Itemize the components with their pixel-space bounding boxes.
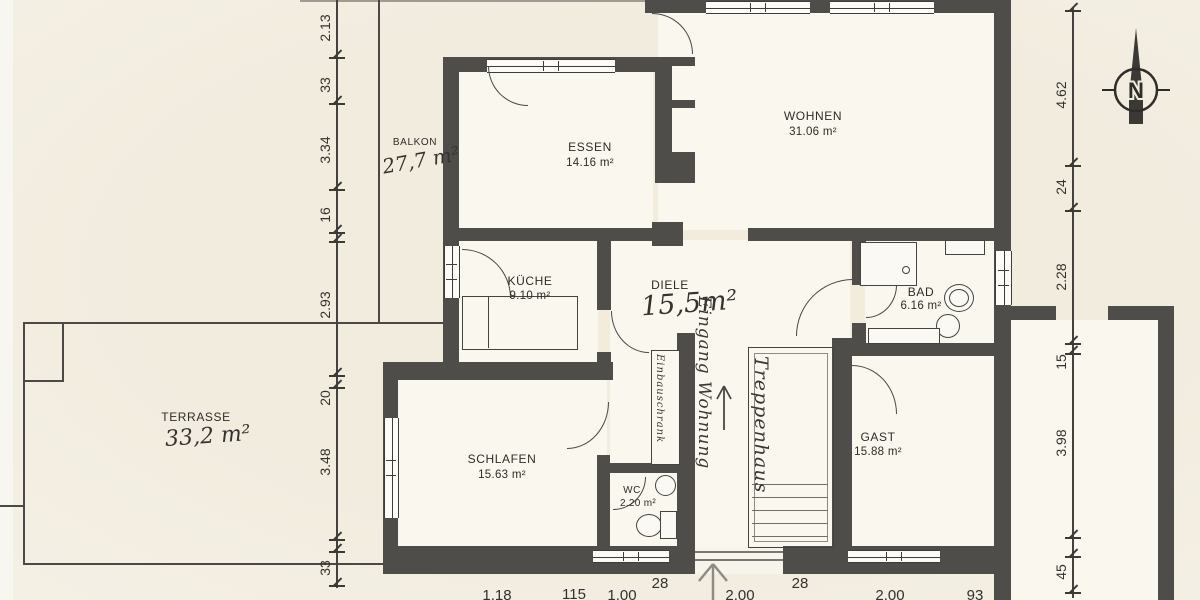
room-area-terrasse: 33,2 m²	[164, 421, 251, 452]
entry-direction-arrow	[712, 378, 736, 434]
room-area-wohnen: 31.06 m²	[789, 126, 837, 138]
kitchen-counter-divider	[488, 296, 489, 348]
closet-annotation: Einbauschrank	[654, 354, 665, 462]
window	[384, 418, 399, 518]
wall	[443, 228, 683, 241]
room-label-terrasse: TERRASSE	[161, 410, 230, 424]
wc-sink	[655, 475, 676, 496]
dim-left-7: 33	[317, 560, 333, 576]
bathtub	[868, 328, 940, 344]
terrace-notch	[23, 380, 64, 382]
dim-right-4: 3.98	[1053, 429, 1069, 456]
compass-north-icon: N	[1098, 26, 1182, 126]
wall	[852, 343, 1010, 356]
window	[706, 1, 810, 14]
wall	[652, 222, 683, 246]
wall-niche	[672, 66, 695, 100]
floor-plan: Einbauschrank BALKON 27,7 m² ESSEN 14.16…	[0, 0, 1200, 600]
wall	[597, 238, 611, 310]
scan-margin	[0, 0, 13, 600]
dim-bottom-5: 28	[792, 575, 809, 592]
entry-annotation: Eingang Wohnung	[694, 296, 714, 446]
window	[593, 550, 669, 563]
shower-drain	[902, 266, 910, 274]
threshold-line	[695, 551, 783, 553]
terrace-notch	[62, 322, 64, 382]
room-essen	[458, 70, 653, 230]
room-area-kueche: 9.10 m²	[509, 290, 550, 302]
dim-left-1: 33	[317, 77, 333, 93]
room-label-gast: GAST	[860, 430, 895, 444]
toilet-bowl-inner	[949, 289, 969, 307]
wall	[443, 57, 459, 369]
window	[995, 251, 1012, 305]
terrace-stub-line	[0, 505, 24, 507]
window	[444, 246, 460, 298]
room-area-wc: 2.20 m²	[620, 498, 656, 509]
dim-right-0: 4.62	[1053, 81, 1069, 108]
dim-bottom-4: 2.00	[725, 587, 754, 600]
wall	[1108, 306, 1160, 320]
wall	[852, 323, 866, 345]
dim-bottom-3: 28	[652, 575, 669, 592]
shower-tray	[860, 242, 917, 286]
wall	[383, 362, 613, 380]
dim-left-3: 16	[317, 207, 333, 223]
scan-edge-line	[300, 0, 646, 2]
dim-right-3: 15	[1053, 354, 1069, 370]
dim-left-0: 2.13	[317, 14, 333, 41]
dim-left-5: 20	[317, 390, 333, 406]
balcony-railing	[378, 0, 380, 322]
dimension-line-left	[336, 0, 338, 588]
wall	[645, 0, 1010, 13]
wc-toilet-tank	[660, 511, 677, 539]
dim-right-1: 24	[1053, 179, 1069, 195]
dim-right-5: 45	[1053, 564, 1069, 580]
wc-toilet-bowl	[636, 514, 662, 537]
stairs-annotation: Treppenhaus	[750, 356, 772, 541]
room-label-wohnen: WOHNEN	[784, 109, 842, 123]
dim-bottom-7: 93	[967, 587, 984, 600]
room-area-essen: 14.16 m²	[566, 157, 614, 169]
window	[848, 550, 940, 563]
room-label-schlafen: SCHLAFEN	[468, 452, 537, 466]
wall	[832, 338, 852, 548]
dim-bottom-1: 115	[562, 586, 586, 600]
room-label-kueche: KÜCHE	[507, 274, 552, 288]
room-label-wc: WC	[623, 485, 641, 496]
dim-bottom-6: 2.00	[875, 587, 904, 600]
wall-niche	[672, 108, 695, 152]
neighbor-area	[1010, 320, 1158, 600]
dim-right-2: 2.28	[1053, 263, 1069, 290]
room-area-bad: 6.16 m²	[900, 300, 941, 312]
room-area-schlafen: 15.63 m²	[478, 469, 526, 481]
room-area-gast: 15.88 m²	[854, 446, 902, 458]
dim-left-6: 3.48	[317, 448, 333, 475]
dim-bottom-2: 1.00	[607, 587, 636, 600]
wall	[597, 455, 610, 548]
terrace-edge-left	[23, 322, 25, 565]
dim-left-4: 2.93	[317, 291, 333, 318]
terrace-edge-top	[23, 322, 444, 324]
bath-counter	[945, 240, 985, 255]
wall	[1011, 306, 1056, 320]
kitchen-counter	[462, 296, 578, 350]
wall	[1158, 306, 1174, 600]
dim-left-2: 3.34	[317, 136, 333, 163]
dim-bottom-0: 1.18	[482, 587, 511, 600]
room-label-bad: BAD	[908, 285, 934, 299]
window	[830, 1, 934, 14]
room-label-essen: ESSEN	[568, 140, 612, 154]
dimension-line-right	[1072, 8, 1074, 598]
compass-label: N	[1128, 78, 1144, 103]
